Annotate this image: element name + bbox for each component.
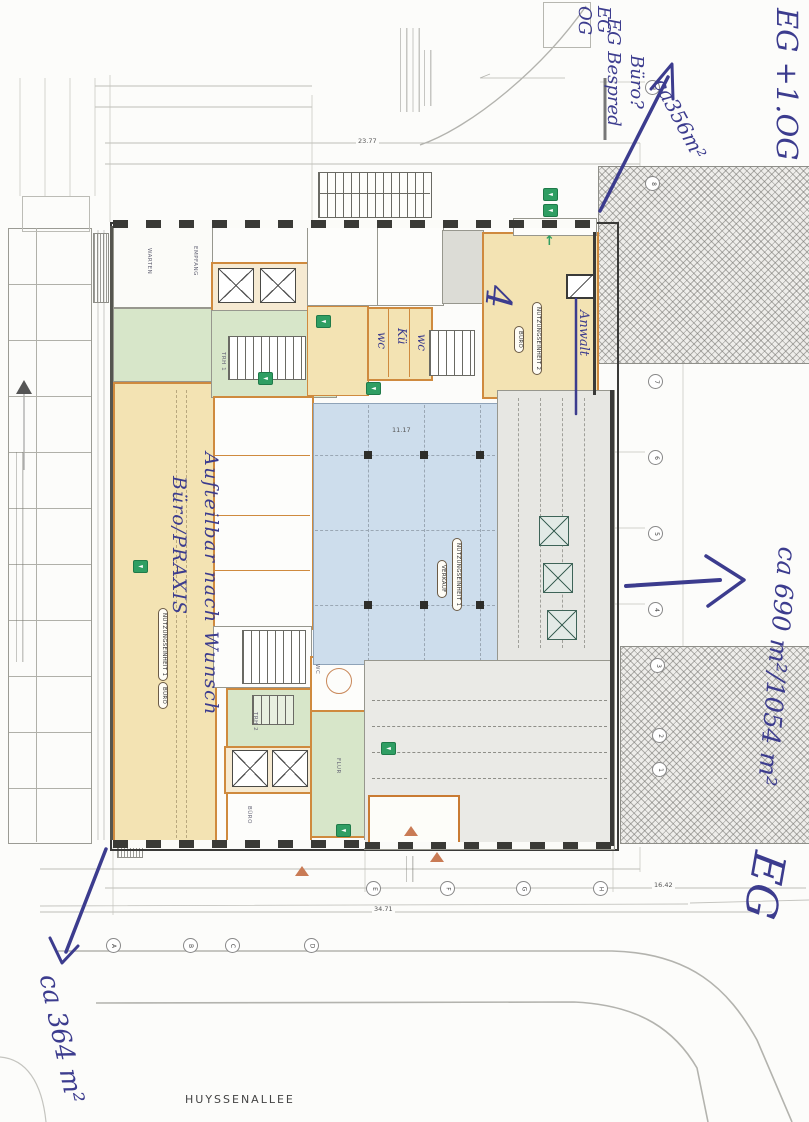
ink-arrow-icon [66,849,106,952]
hw-note-box-line: OG [574,6,593,35]
hw-wc-right: wc [415,334,428,351]
ink-arrow-icon [626,580,720,586]
ink-arrows [0,0,809,1122]
hw-use-note: Büro/PRAXIS [168,476,188,615]
hw-kitchen: Kü [395,328,408,344]
floor-plan-scan: ◄ ◄ ◄ ◄ ◄ ◄ ◄ ◄ ↑ NUTZUNGSEINHEIT 1 BÜRO… [0,0,809,1122]
hw-mark: 4 [478,284,518,310]
hw-note-question-2: Büro? [626,55,645,109]
hw-floor-right: EG [735,848,792,922]
street-label: HUYSSENALLEE [185,1093,295,1106]
hw-room-note-anwalt: Anwalt [576,310,590,356]
hw-flexibility-note: Aufteilbar nach Wunsch [200,452,220,716]
hw-floors-top-right: EG +1.OG [772,8,802,160]
hw-note-question-1: EG Bespred [603,18,622,127]
hw-wc-left: wc [375,332,388,349]
